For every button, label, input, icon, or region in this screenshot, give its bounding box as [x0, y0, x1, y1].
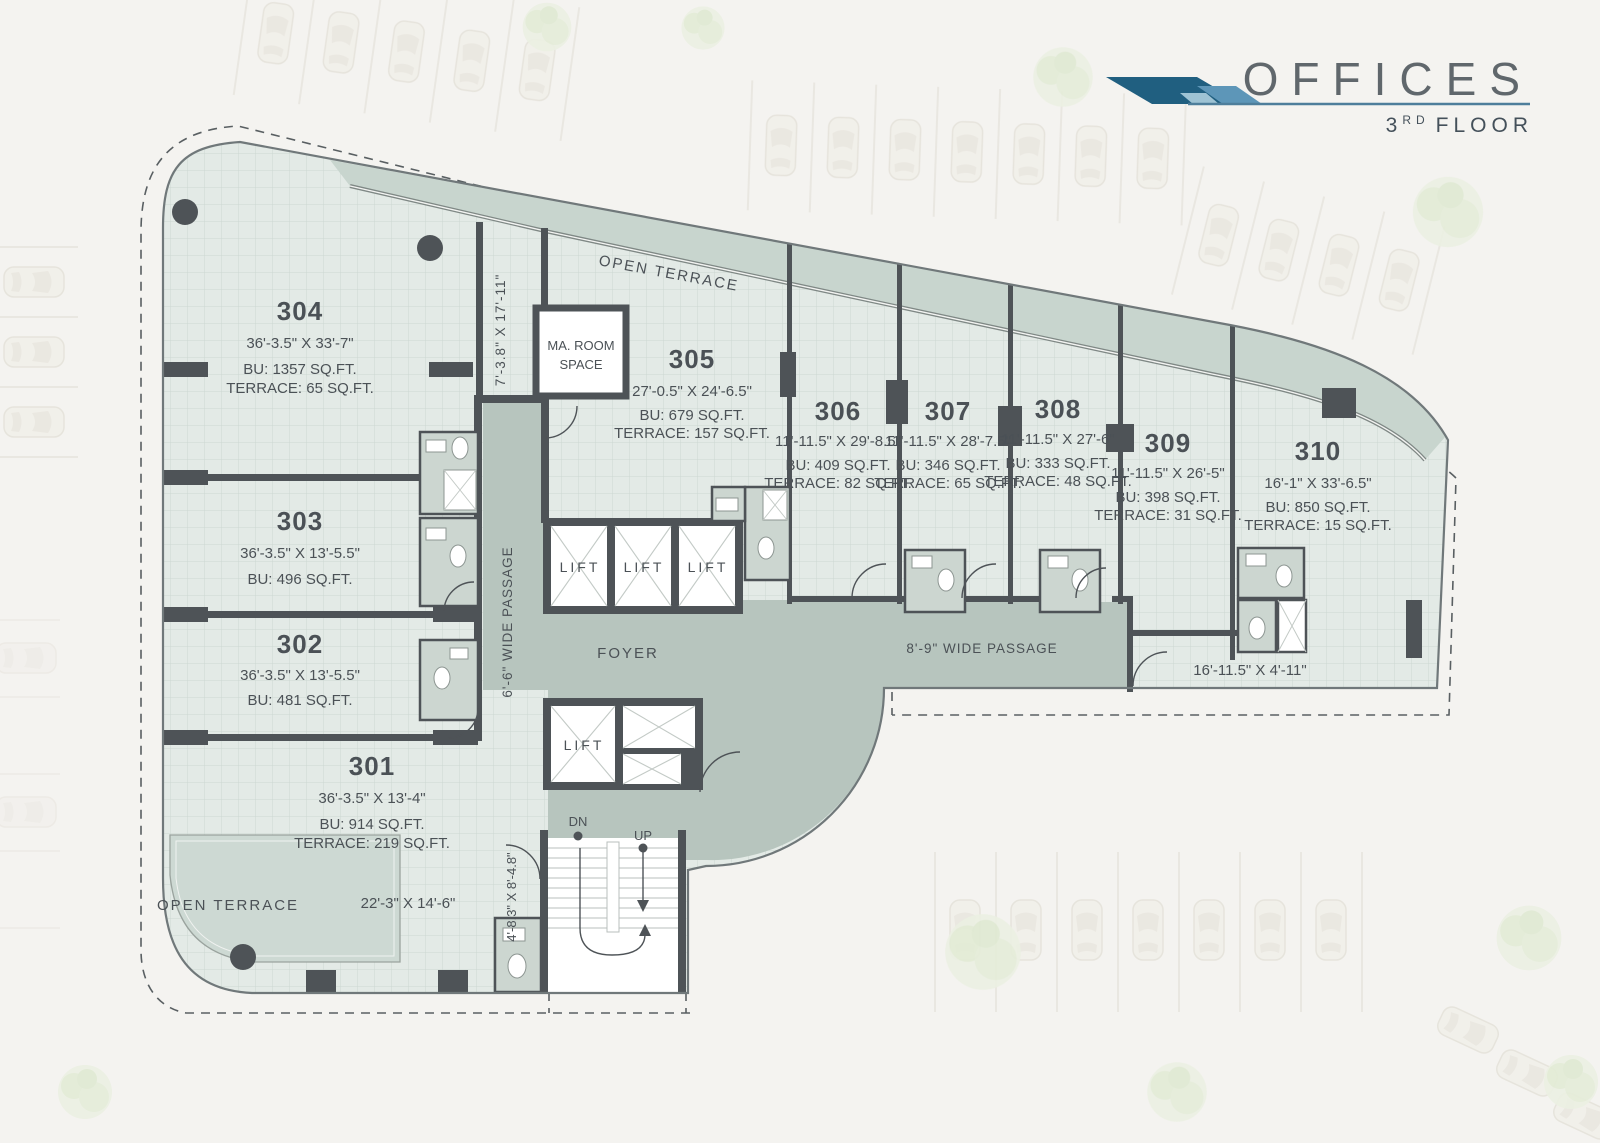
unit-terrace: TERRACE: 157 SQ.FT. [614, 425, 770, 442]
car-icon [1072, 900, 1102, 960]
unit-dims: 16'-1" X 33'-6.5" [1264, 475, 1371, 492]
unit-dims: 27'-0.5" X 24'-6.5" [632, 383, 752, 400]
unit-number: 304 [277, 296, 323, 326]
passage-vertical-label: 6'-6" WIDE PASSAGE [500, 546, 515, 697]
lift-label: LIFT [564, 737, 605, 753]
unit-number: 309 [1145, 428, 1191, 458]
car-icon [4, 267, 64, 297]
page-title: OFFICES [1243, 53, 1533, 105]
tree-icon [523, 3, 572, 52]
unit-bu: BU: 409 SQ.FT. [785, 457, 890, 474]
unit-number: 310 [1295, 436, 1341, 466]
floor-word: FLOOR [1436, 114, 1533, 137]
car-icon [1137, 128, 1169, 189]
open-terrace-bottom-label: OPEN TERRACE [157, 897, 299, 914]
unit-dims: 36'-3.5" X 33'-7" [246, 335, 353, 352]
car-icon [1133, 900, 1163, 960]
car-icon [1013, 124, 1045, 185]
unit-number: 303 [277, 506, 323, 536]
car-icon [765, 115, 797, 176]
floorplan-canvas: 304 36'-3.5" X 33'-7" BU: 1357 SQ.FT. TE… [0, 0, 1600, 1143]
tree-icon [1544, 1055, 1598, 1109]
unit-dims: 36'-3.5" X 13'-5.5" [240, 667, 360, 684]
foyer-label: FOYER [597, 645, 659, 662]
unit-terrace: TERRACE: 15 SQ.FT. [1244, 517, 1392, 534]
car-icon [4, 407, 64, 437]
tree-icon [945, 914, 1021, 990]
car-icon [0, 643, 56, 673]
car-icon [0, 797, 56, 827]
tree-icon [1413, 177, 1483, 247]
unit-number: 306 [815, 396, 861, 426]
lift-label: LIFT [560, 559, 601, 575]
car-icon [1255, 900, 1285, 960]
car-icon [889, 119, 921, 180]
unit-dims: 11'-11.5" X 29'-8.5" [775, 433, 901, 450]
unit-bu: BU: 346 SQ.FT. [895, 457, 1000, 474]
unit-bu: BU: 850 SQ.FT. [1265, 499, 1370, 516]
floorplan-page: 304 36'-3.5" X 33'-7" BU: 1357 SQ.FT. TE… [0, 0, 1600, 1143]
unit-terrace: TERRACE: 48 SQ.FT. [984, 473, 1132, 490]
unit-bu: BU: 333 SQ.FT. [1005, 455, 1110, 472]
car-icon [951, 121, 983, 182]
unit-dims: 11'-11.5" X 27'-6" [1001, 431, 1114, 448]
unit-number: 301 [349, 751, 395, 781]
entry-dim: 22'-3" X 14'-6" [361, 895, 456, 912]
car-icon [4, 337, 64, 367]
passage-horizontal-label: 8'-9" WIDE PASSAGE [906, 641, 1057, 656]
staircase [540, 830, 686, 993]
unit-bu: BU: 481 SQ.FT. [247, 692, 352, 709]
car-icon [1075, 126, 1107, 187]
lobby-dim: 4'-8.3" X 8'-4.8" [504, 852, 519, 942]
right-strip-dim: 16'-11.5" X 4'-11" [1193, 662, 1306, 679]
unit-number: 307 [925, 396, 971, 426]
unit-terrace: TERRACE: 31 SQ.FT. [1094, 507, 1242, 524]
unit-number: 305 [669, 344, 715, 374]
ma-room-label-2: SPACE [559, 357, 602, 372]
tree-icon [681, 6, 724, 49]
car-icon [827, 117, 859, 178]
niche-dim: 7'-3.8" X 17'-11" [493, 274, 508, 387]
car-icon [1194, 900, 1224, 960]
lift-label: LIFT [624, 559, 665, 575]
tree-icon [1033, 47, 1092, 106]
unit-dims: 11'-11.5" X 28'-7.5" [885, 433, 1011, 450]
tree-icon [1497, 906, 1562, 971]
tree-icon [1147, 1062, 1206, 1121]
lift-label: LIFT [688, 559, 729, 575]
unit-number: 302 [277, 629, 323, 659]
unit-bu: BU: 398 SQ.FT. [1115, 489, 1220, 506]
unit-terrace: TERRACE: 65 SQ.FT. [226, 380, 374, 397]
unit-dims: 11'-11.5" X 26'-5" [1111, 465, 1224, 482]
unit-terrace: TERRACE: 219 SQ.FT. [294, 835, 450, 852]
unit-number: 308 [1035, 394, 1081, 424]
stairs-up-label: UP [634, 828, 652, 843]
unit-bu: BU: 914 SQ.FT. [319, 816, 424, 833]
unit-dims: 36'-3.5" X 13'-5.5" [240, 545, 360, 562]
car-icon [1316, 900, 1346, 960]
unit-bu: BU: 1357 SQ.FT. [243, 361, 356, 378]
unit-bu: BU: 679 SQ.FT. [639, 407, 744, 424]
stairs-dn-label: DN [569, 814, 588, 829]
unit-bu: BU: 496 SQ.FT. [247, 571, 352, 588]
ma-room-label-1: MA. ROOM [547, 338, 614, 353]
unit-dims: 36'-3.5" X 13'-4" [318, 790, 425, 807]
floor-number: 3 [1386, 114, 1403, 137]
tree-icon [58, 1065, 112, 1119]
floor-ordinal: RD [1402, 113, 1429, 127]
